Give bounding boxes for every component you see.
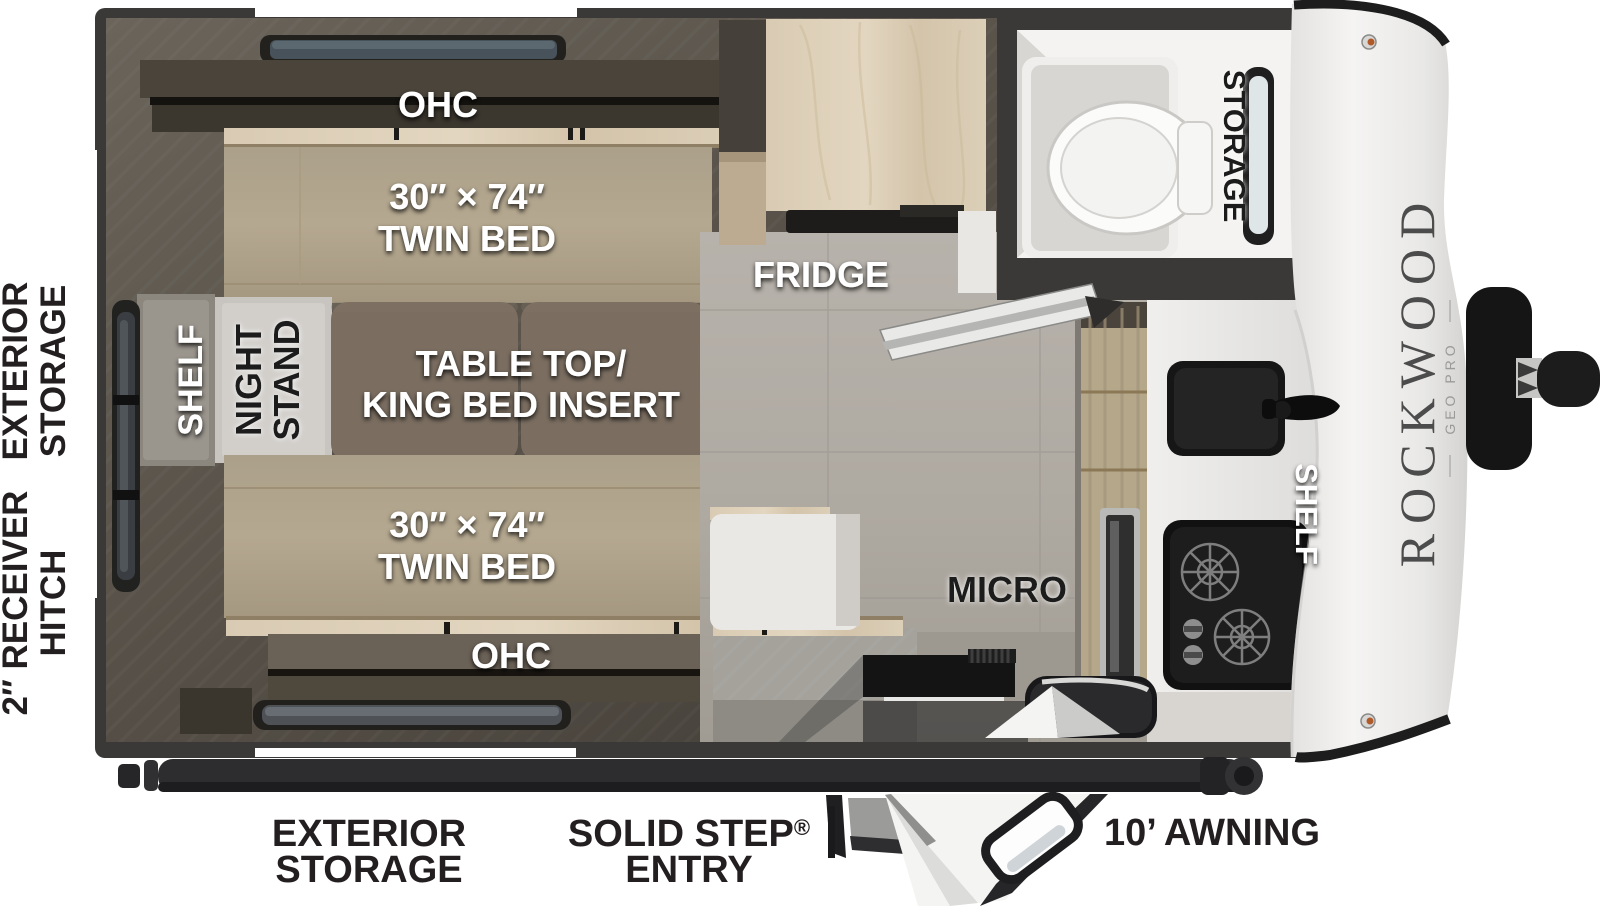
svg-text:SHELF: SHELF: [172, 324, 210, 435]
svg-text:ROCKWOOD: ROCKWOOD: [1389, 193, 1445, 567]
svg-text:NIGHT: NIGHT: [228, 324, 269, 436]
svg-text:ENTRY: ENTRY: [625, 849, 752, 891]
svg-text:STORAGE: STORAGE: [34, 285, 73, 457]
svg-text:KING BED INSERT: KING BED INSERT: [362, 384, 680, 425]
svg-text:EXTERIOR: EXTERIOR: [0, 282, 35, 461]
svg-text:HITCH: HITCH: [34, 550, 73, 657]
svg-text:STAND: STAND: [266, 319, 307, 440]
svg-text:STORAGE: STORAGE: [1217, 70, 1252, 223]
svg-text:2″ RECEIVER: 2″ RECEIVER: [0, 491, 35, 716]
svg-text:TWIN BED: TWIN BED: [378, 218, 556, 259]
svg-text:OHC: OHC: [471, 635, 551, 676]
svg-text:TWIN BED: TWIN BED: [378, 546, 556, 587]
svg-text:FRIDGE: FRIDGE: [753, 254, 889, 295]
svg-text:30″ × 74″: 30″ × 74″: [389, 176, 545, 217]
svg-text:STORAGE: STORAGE: [275, 849, 462, 891]
svg-text:SHELF: SHELF: [1289, 463, 1324, 565]
svg-text:OHC: OHC: [398, 84, 478, 125]
svg-text:GEO PRO: GEO PRO: [1442, 341, 1458, 434]
svg-text:TABLE TOP/: TABLE TOP/: [416, 343, 627, 384]
svg-text:30″ × 74″: 30″ × 74″: [389, 504, 545, 545]
svg-text:MICRO: MICRO: [947, 569, 1067, 610]
svg-text:10’ AWNING: 10’ AWNING: [1104, 812, 1320, 854]
